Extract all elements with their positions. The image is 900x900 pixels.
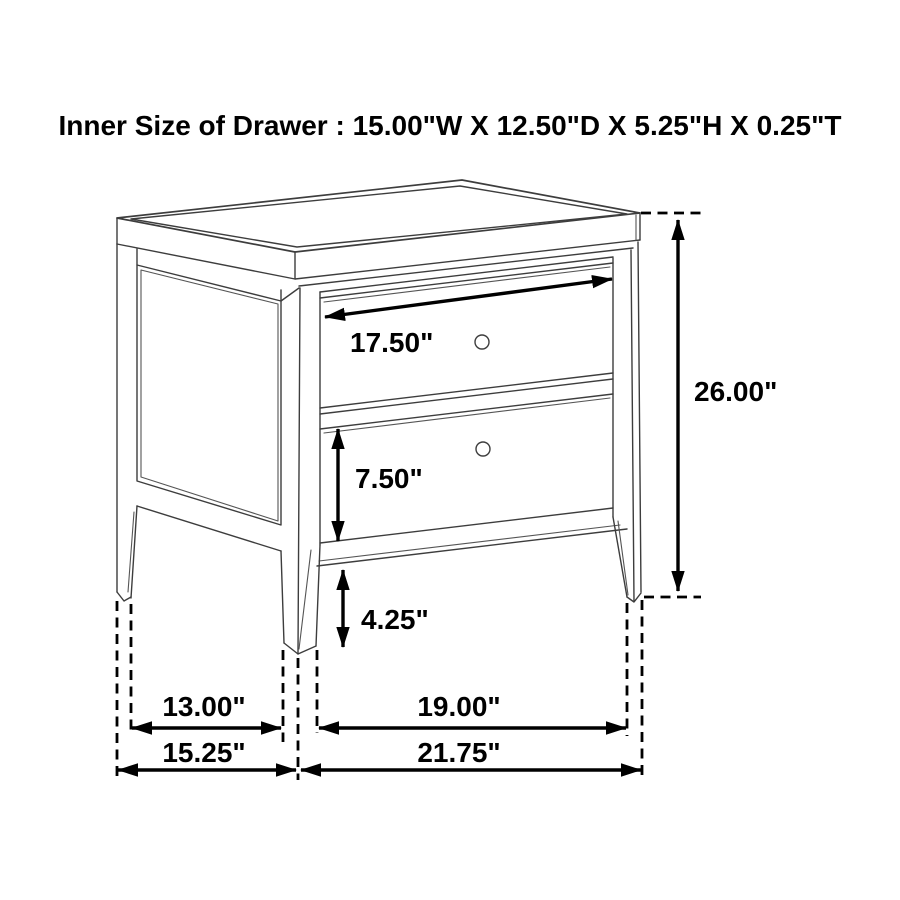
dim-label-side-outer: 15.25" [162,737,245,768]
table-top [117,180,640,279]
dim-label-drawer-width: 17.50" [350,327,433,358]
dim-label-front-outer: 21.75" [417,737,500,768]
drawer1-knob [475,335,489,349]
drawer2-knob [476,442,490,456]
front-left-leg [281,288,320,654]
dimension-figure: Inner Size of Drawer : 15.00"W X 12.50"D… [0,0,900,900]
front-face-and-drawers [299,248,633,566]
dimension-arrows [118,220,678,770]
dim-label-front-inner: 19.00" [417,691,500,722]
front-right-leg [613,242,641,602]
dim-label-leg-clearance: 4.25" [361,604,429,635]
back-left-leg [117,244,137,601]
nightstand-line-art [117,180,641,654]
dim-label-drawer-height: 7.50" [355,463,423,494]
dim-label-overall-height: 26.00" [694,376,777,407]
dim-label-side-inner: 13.00" [162,691,245,722]
left-side-panel [137,249,299,551]
nightstand-technical-drawing: 17.50" 26.00" 7.50" 4.25" 13.00" 19.00" … [0,0,900,900]
